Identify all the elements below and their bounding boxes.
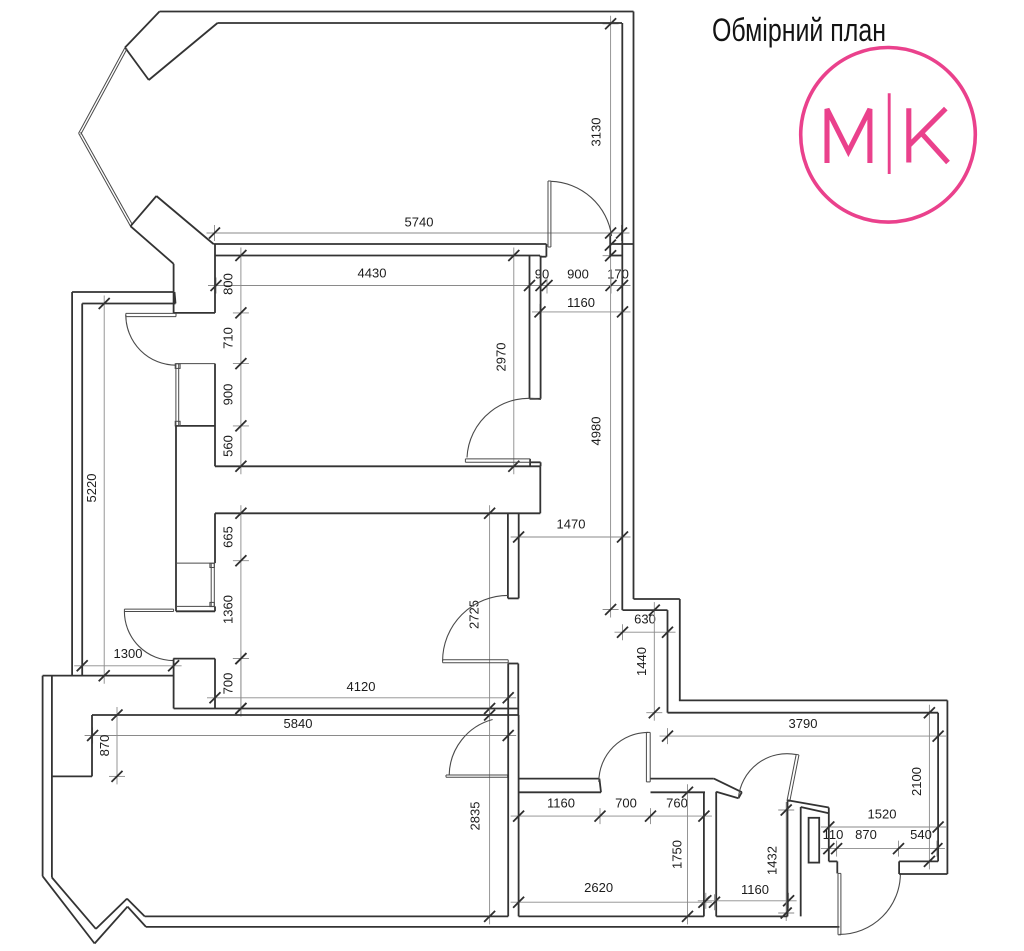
svg-text:700: 700	[615, 796, 637, 811]
svg-text:1160: 1160	[567, 295, 595, 310]
svg-text:1160: 1160	[741, 882, 769, 897]
svg-text:870: 870	[97, 735, 112, 757]
svg-text:1440: 1440	[634, 647, 649, 676]
svg-text:2620: 2620	[584, 880, 613, 895]
svg-text:1360: 1360	[221, 595, 236, 624]
svg-text:800: 800	[221, 273, 236, 295]
svg-text:1470: 1470	[557, 517, 586, 532]
svg-text:2100: 2100	[909, 767, 924, 796]
svg-text:665: 665	[221, 526, 236, 548]
svg-text:760: 760	[666, 796, 688, 811]
svg-text:560: 560	[221, 435, 236, 457]
svg-text:4980: 4980	[589, 417, 604, 446]
svg-text:3130: 3130	[589, 118, 604, 147]
svg-text:900: 900	[221, 384, 236, 406]
svg-text:90: 90	[535, 267, 549, 282]
svg-text:870: 870	[855, 827, 877, 842]
svg-text:1432: 1432	[765, 846, 780, 875]
svg-text:4430: 4430	[358, 266, 387, 281]
svg-text:710: 710	[221, 327, 236, 349]
svg-text:1160: 1160	[547, 796, 575, 811]
svg-text:700: 700	[221, 673, 236, 695]
svg-text:2835: 2835	[468, 802, 483, 831]
svg-text:5840: 5840	[284, 716, 313, 731]
svg-text:110: 110	[823, 827, 844, 842]
svg-text:4120: 4120	[347, 679, 376, 694]
svg-text:Обмірний план: Обмірний план	[712, 12, 886, 48]
svg-text:1520: 1520	[868, 807, 897, 822]
svg-text:540: 540	[910, 827, 932, 842]
svg-text:5740: 5740	[405, 215, 434, 230]
svg-text:2970: 2970	[494, 343, 509, 372]
svg-text:630: 630	[634, 612, 656, 627]
svg-text:5220: 5220	[84, 474, 99, 503]
svg-text:3790: 3790	[789, 716, 818, 731]
svg-text:1750: 1750	[670, 840, 685, 869]
svg-text:1300: 1300	[114, 646, 143, 661]
svg-text:900: 900	[567, 267, 589, 282]
